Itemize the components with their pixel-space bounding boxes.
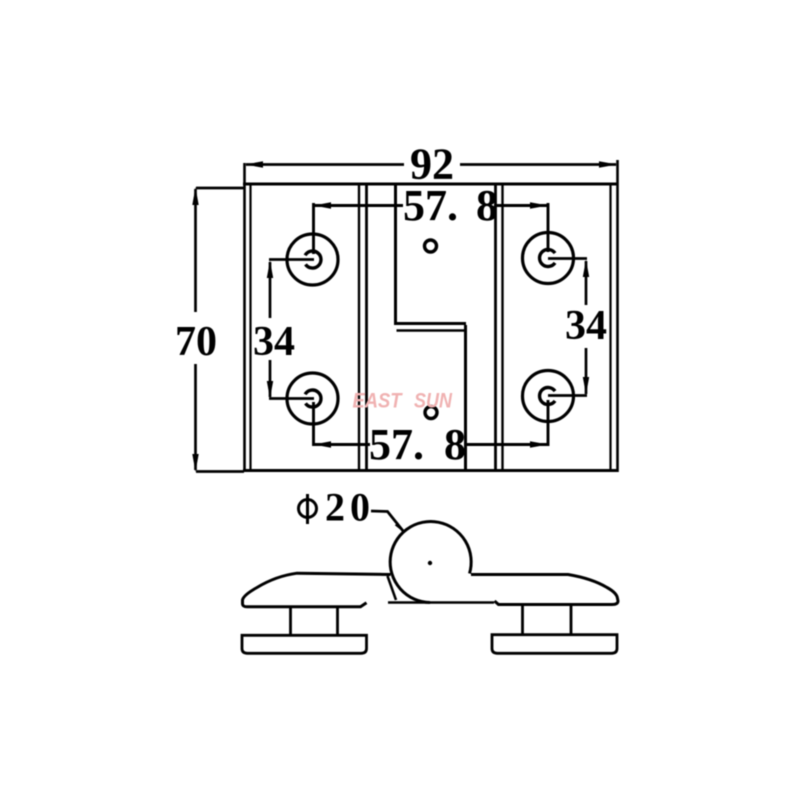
svg-text:EAST: EAST [353, 390, 404, 413]
svg-text:0: 0 [350, 485, 370, 530]
svg-text:57.: 57. [369, 420, 424, 469]
svg-text:57.: 57. [403, 181, 458, 230]
svg-text:34: 34 [253, 319, 295, 365]
svg-text:34: 34 [565, 303, 607, 349]
svg-text:8: 8 [476, 181, 498, 230]
svg-text:2: 2 [325, 485, 345, 530]
svg-text:8: 8 [444, 420, 466, 469]
svg-text:SUN: SUN [414, 390, 453, 413]
svg-text:70: 70 [175, 319, 217, 365]
